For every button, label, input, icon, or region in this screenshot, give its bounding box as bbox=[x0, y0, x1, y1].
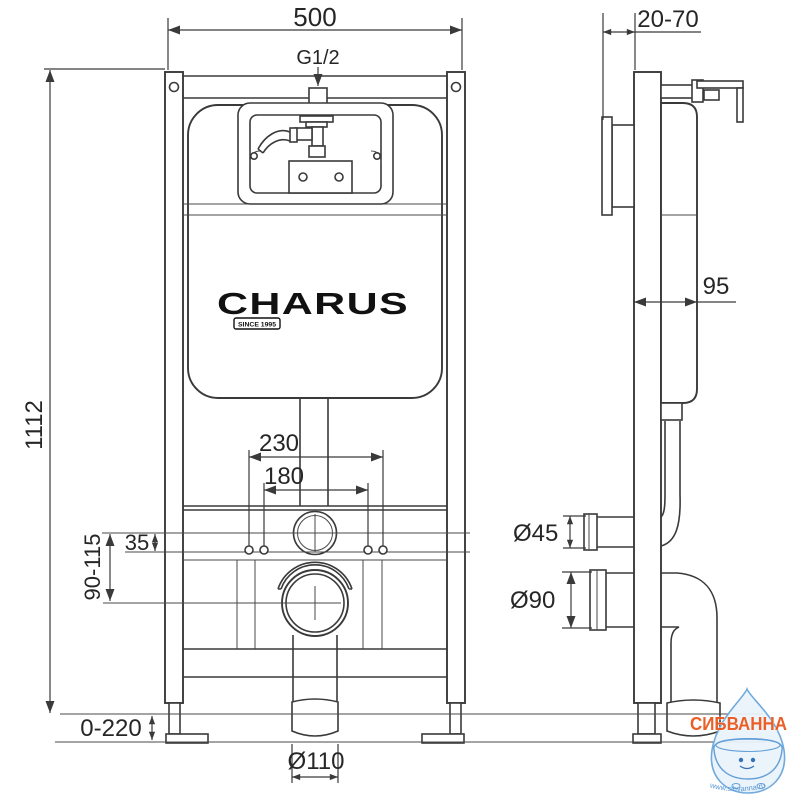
watermark-name: СИБВАННА bbox=[690, 713, 787, 734]
mounting-stud bbox=[379, 546, 387, 554]
plate-hole-icon bbox=[335, 173, 343, 181]
dim-water-inlet: G1/2 bbox=[296, 47, 339, 69]
plate-hole-icon bbox=[299, 173, 307, 181]
rail-hole-right-icon bbox=[452, 83, 461, 92]
side-view bbox=[584, 72, 743, 743]
dim-foot-adjust: 0-220 bbox=[80, 715, 141, 742]
dim-flush-to-studs: 35 bbox=[125, 530, 149, 555]
dim-flush-pipe-dia: Ø45 bbox=[513, 520, 558, 547]
dim-waste-pipe-dia: Ø90 bbox=[510, 587, 555, 614]
dim-outlet-dia: Ø110 bbox=[288, 748, 345, 775]
brand-tagline: SINCE 1995 bbox=[238, 322, 276, 329]
side-frame-column bbox=[634, 72, 661, 703]
front-left-rail bbox=[165, 72, 183, 703]
technical-drawing: CHARUS SINCE 1995 bbox=[0, 0, 790, 800]
mounting-stud bbox=[245, 546, 253, 554]
waste-down-pipe bbox=[293, 635, 337, 701]
lower-crossbar bbox=[183, 506, 447, 510]
side-tank bbox=[661, 103, 697, 403]
mounting-stud bbox=[364, 546, 372, 554]
mounting-stud bbox=[260, 546, 268, 554]
front-right-rail bbox=[447, 72, 465, 703]
side-flush-bend bbox=[661, 421, 680, 546]
side-waste-cap bbox=[590, 570, 606, 630]
dim-frame-depth: 95 bbox=[703, 273, 730, 300]
dim-flush-to-waste: 90-115 bbox=[80, 534, 105, 601]
tab-hole-icon bbox=[251, 153, 257, 159]
side-flush-cap bbox=[584, 514, 597, 550]
tab-hole-icon bbox=[374, 153, 380, 159]
dim-frame-width: 500 bbox=[293, 2, 336, 32]
flush-plate-box bbox=[612, 125, 634, 207]
flush-plate bbox=[602, 117, 612, 215]
rail-hole-left-icon bbox=[170, 83, 179, 92]
dim-wall-offset: 20-70 bbox=[637, 6, 698, 33]
outlet-sleeve bbox=[292, 699, 338, 736]
front-view: CHARUS SINCE 1995 bbox=[102, 72, 470, 743]
side-leg bbox=[638, 703, 655, 734]
drawing-canvas: CHARUS SINCE 1995 bbox=[0, 0, 790, 800]
left-leg bbox=[169, 703, 180, 734]
bottom-beam bbox=[183, 649, 447, 677]
brand-logo: CHARUS bbox=[217, 286, 409, 321]
side-tank-step bbox=[661, 403, 682, 420]
right-leg bbox=[450, 703, 461, 734]
dim-stud-spacing-outer: 230 bbox=[259, 430, 299, 457]
dim-stud-spacing-inner: 180 bbox=[264, 463, 304, 490]
dim-frame-height: 1112 bbox=[21, 400, 48, 450]
